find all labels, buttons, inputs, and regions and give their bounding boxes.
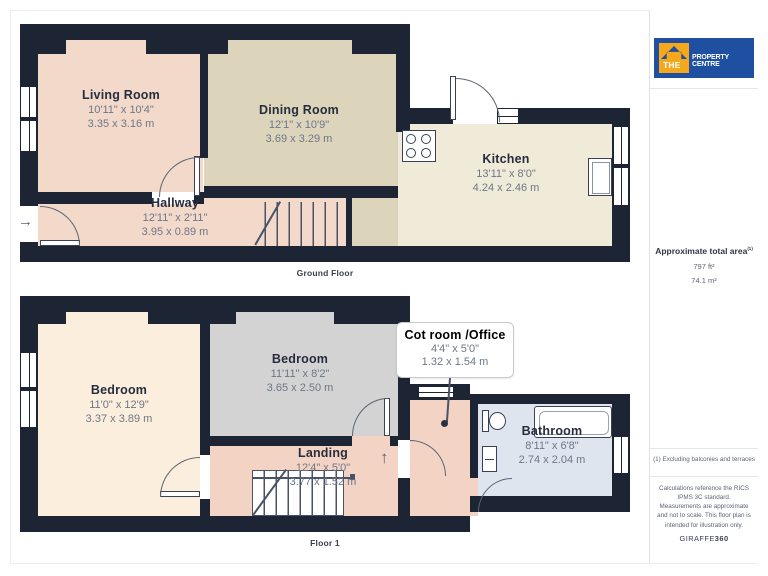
disclaimer-text: Calculations reference the RICS IPMS 3C … bbox=[656, 484, 752, 530]
wall bbox=[334, 312, 398, 324]
floor-caption-ground: Ground Floor bbox=[20, 268, 630, 278]
room-dim-metric: 3.37 x 3.89 m bbox=[43, 413, 195, 426]
hob-burner bbox=[421, 134, 431, 144]
wall bbox=[200, 40, 208, 158]
room-dim-metric: 4.24 x 2.46 m bbox=[430, 182, 582, 195]
total-area-superscript: (1) bbox=[747, 246, 753, 251]
understairs-floor bbox=[348, 198, 398, 246]
total-area-label-text: Approximate total area bbox=[655, 246, 747, 256]
room-dim-metric: 3.65 x 2.50 m bbox=[224, 382, 376, 395]
room-dim-imperial: 12'1" x 10'9" bbox=[223, 119, 375, 132]
room-name: Hallway bbox=[95, 196, 255, 211]
door-arc bbox=[456, 78, 500, 122]
logo-the-text: THE bbox=[663, 60, 681, 70]
door-opening bbox=[200, 455, 210, 499]
room-dim-imperial: 11'11" x 8'2" bbox=[224, 368, 376, 381]
window-mullion bbox=[20, 387, 37, 391]
sidebar-divider bbox=[650, 476, 758, 477]
room-name: Dining Room bbox=[223, 103, 375, 118]
room-dim-imperial: 12'4" x 5'0" bbox=[248, 462, 398, 475]
room-dim-imperial: 4'4" x 5'0" bbox=[397, 343, 513, 355]
property-centre-roof-icon bbox=[661, 46, 687, 59]
wall bbox=[352, 40, 398, 54]
entry-arrow-icon: → bbox=[18, 213, 33, 230]
total-area-ft: 797 ft² bbox=[650, 262, 758, 271]
room-label-dining-room: Dining Room 12'1" x 10'9" 3.69 x 3.29 m bbox=[223, 103, 375, 146]
floor-caption-floor1: Floor 1 bbox=[20, 538, 630, 548]
hob-burner bbox=[406, 134, 416, 144]
room-dim-imperial: 10'11" x 10'4" bbox=[45, 104, 197, 117]
wall bbox=[20, 24, 410, 40]
area-footnote: (1) Excluding balconies and terraces bbox=[650, 456, 758, 463]
room-name: Bedroom bbox=[224, 352, 376, 367]
wall bbox=[146, 40, 203, 54]
logo-square: THE bbox=[659, 43, 689, 73]
window-mullion bbox=[20, 117, 37, 121]
room-name: Cot room /Office bbox=[397, 328, 513, 342]
wall bbox=[148, 312, 200, 324]
room-dim-metric: 3.69 x 3.29 m bbox=[223, 133, 375, 146]
door-opening bbox=[398, 440, 410, 478]
room-dim-imperial: 13'11" x 8'0" bbox=[430, 168, 582, 181]
window bbox=[497, 108, 519, 124]
wall bbox=[38, 312, 66, 324]
window-mullion bbox=[613, 164, 629, 168]
giraffe-360-text: 360 bbox=[715, 534, 729, 543]
sidebar-divider bbox=[650, 448, 758, 449]
wall bbox=[396, 40, 410, 132]
total-area-m: 74.1 m² bbox=[650, 276, 758, 285]
wall bbox=[20, 246, 630, 262]
room-label-bathroom: Bathroom 8'11" x 6'8" 2.74 x 2.04 m bbox=[478, 424, 626, 467]
room-label-bedroom-mid: Bedroom 11'11" x 8'2" 3.65 x 2.50 m bbox=[224, 352, 376, 395]
wall bbox=[20, 296, 410, 312]
giraffe360-logo: GIRAFFE360 bbox=[650, 534, 758, 543]
room-dim-metric: 2.74 x 2.04 m bbox=[478, 454, 626, 467]
room-dim-metric: 1.32 x 1.54 m bbox=[397, 356, 513, 368]
room-label-hallway: Hallway 12'11" x 2'11" 3.95 x 0.89 m bbox=[95, 196, 255, 239]
room-name: Landing bbox=[248, 446, 398, 461]
sink bbox=[588, 158, 612, 196]
room-dim-imperial: 8'11" x 6'8" bbox=[478, 440, 626, 453]
logo-name-text: PROPERTY CENTRE bbox=[692, 54, 754, 68]
room-dim-imperial: 12'11" x 2'11" bbox=[95, 212, 255, 225]
room-name: Kitchen bbox=[430, 152, 582, 167]
sink-basin bbox=[592, 162, 610, 194]
callout-dot bbox=[441, 420, 448, 427]
sidebar-divider bbox=[650, 88, 758, 89]
room-name: Living Room bbox=[45, 88, 197, 103]
room-dim-metric: 3.35 x 3.16 m bbox=[45, 118, 197, 131]
wall bbox=[346, 198, 352, 246]
wall bbox=[210, 312, 236, 324]
hob-burner bbox=[406, 148, 416, 158]
property-centre-logo: THE PROPERTY CENTRE bbox=[654, 38, 754, 78]
room-name: Bathroom bbox=[478, 424, 626, 439]
room-name: Bedroom bbox=[43, 383, 195, 398]
room-dim-metric: 3.77 x 1.52 m bbox=[248, 476, 398, 489]
room-dim-imperial: 11'0" x 12'9" bbox=[43, 399, 195, 412]
sidebar: THE PROPERTY CENTRE Approximate total ar… bbox=[649, 10, 758, 563]
door-opening bbox=[352, 436, 390, 446]
room-label-landing: Landing 12'4" x 5'0" 3.77 x 1.52 m bbox=[248, 446, 398, 489]
room-label-bedroom-left: Bedroom 11'0" x 12'9" 3.37 x 3.89 m bbox=[43, 383, 195, 426]
room-label-living-room: Living Room 10'11" x 10'4" 3.35 x 3.16 m bbox=[45, 88, 197, 131]
wall bbox=[38, 40, 66, 54]
wall bbox=[470, 394, 630, 404]
floorplan-page: → Living Room 10'11" x 10'4" 3.35 x 3.16… bbox=[0, 0, 768, 576]
total-area-label: Approximate total area(1) bbox=[650, 246, 758, 256]
room-label-kitchen: Kitchen 13'11" x 8'0" 4.24 x 2.46 m bbox=[430, 152, 582, 195]
wall bbox=[470, 394, 478, 478]
room-label-cot-room: Cot room /Office 4'4" x 5'0" 1.32 x 1.54… bbox=[396, 322, 514, 378]
giraffe-text: GIRAFFE bbox=[679, 534, 714, 543]
wall bbox=[20, 516, 470, 532]
room-dim-metric: 3.95 x 0.89 m bbox=[95, 226, 255, 239]
